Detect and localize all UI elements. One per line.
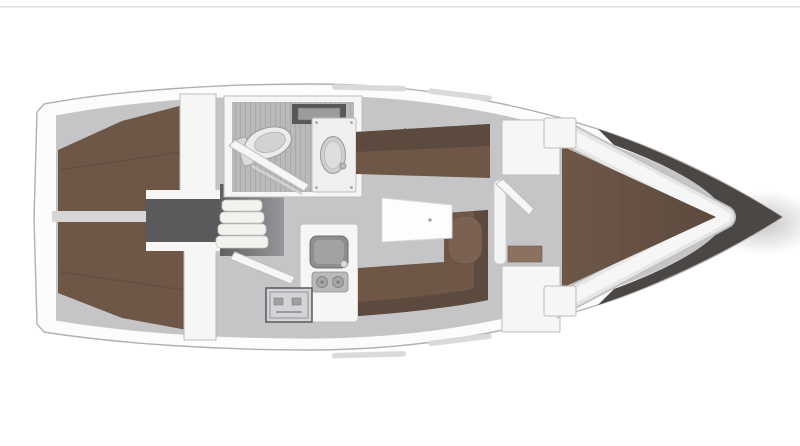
top-rule-line xyxy=(0,6,800,8)
oven-body xyxy=(266,288,312,322)
head-compartment xyxy=(224,96,362,197)
engine-box-wall xyxy=(146,190,220,199)
burner-panel xyxy=(312,272,348,292)
step xyxy=(216,236,268,248)
yacht-floorplan-page xyxy=(0,0,800,446)
aft-bulkhead-port xyxy=(180,94,216,194)
corner-cushion xyxy=(448,216,482,264)
entry-step xyxy=(508,246,542,262)
galley-faucet xyxy=(341,261,348,268)
mast-post xyxy=(494,180,506,264)
washbasin-unit xyxy=(312,118,356,192)
aft-bulkhead-starboard xyxy=(184,248,216,340)
galley-sink-basin xyxy=(314,240,344,264)
basin-faucet xyxy=(340,163,346,169)
screw-dot xyxy=(350,121,353,124)
companionway-steps xyxy=(216,200,268,248)
engine-box xyxy=(146,199,220,242)
engine-box-wall xyxy=(146,242,220,251)
washbasin-bowl xyxy=(325,141,342,169)
hull-window xyxy=(332,351,406,358)
step xyxy=(220,212,264,223)
yacht-floorplan xyxy=(0,0,800,446)
step xyxy=(222,200,262,211)
berth-pad-bottom xyxy=(544,286,576,316)
screw-dot xyxy=(315,186,318,189)
screw-dot xyxy=(350,186,353,189)
berth-pad-top xyxy=(544,118,576,148)
table-dot xyxy=(428,218,431,221)
burner-center xyxy=(321,281,324,284)
saloon-table xyxy=(382,198,452,242)
oven-knob xyxy=(274,298,283,305)
step xyxy=(218,224,266,235)
berth-divider xyxy=(52,211,148,222)
oven xyxy=(266,288,312,322)
screw-dot xyxy=(315,121,318,124)
burner-center xyxy=(337,281,340,284)
oven-knob xyxy=(292,298,301,305)
